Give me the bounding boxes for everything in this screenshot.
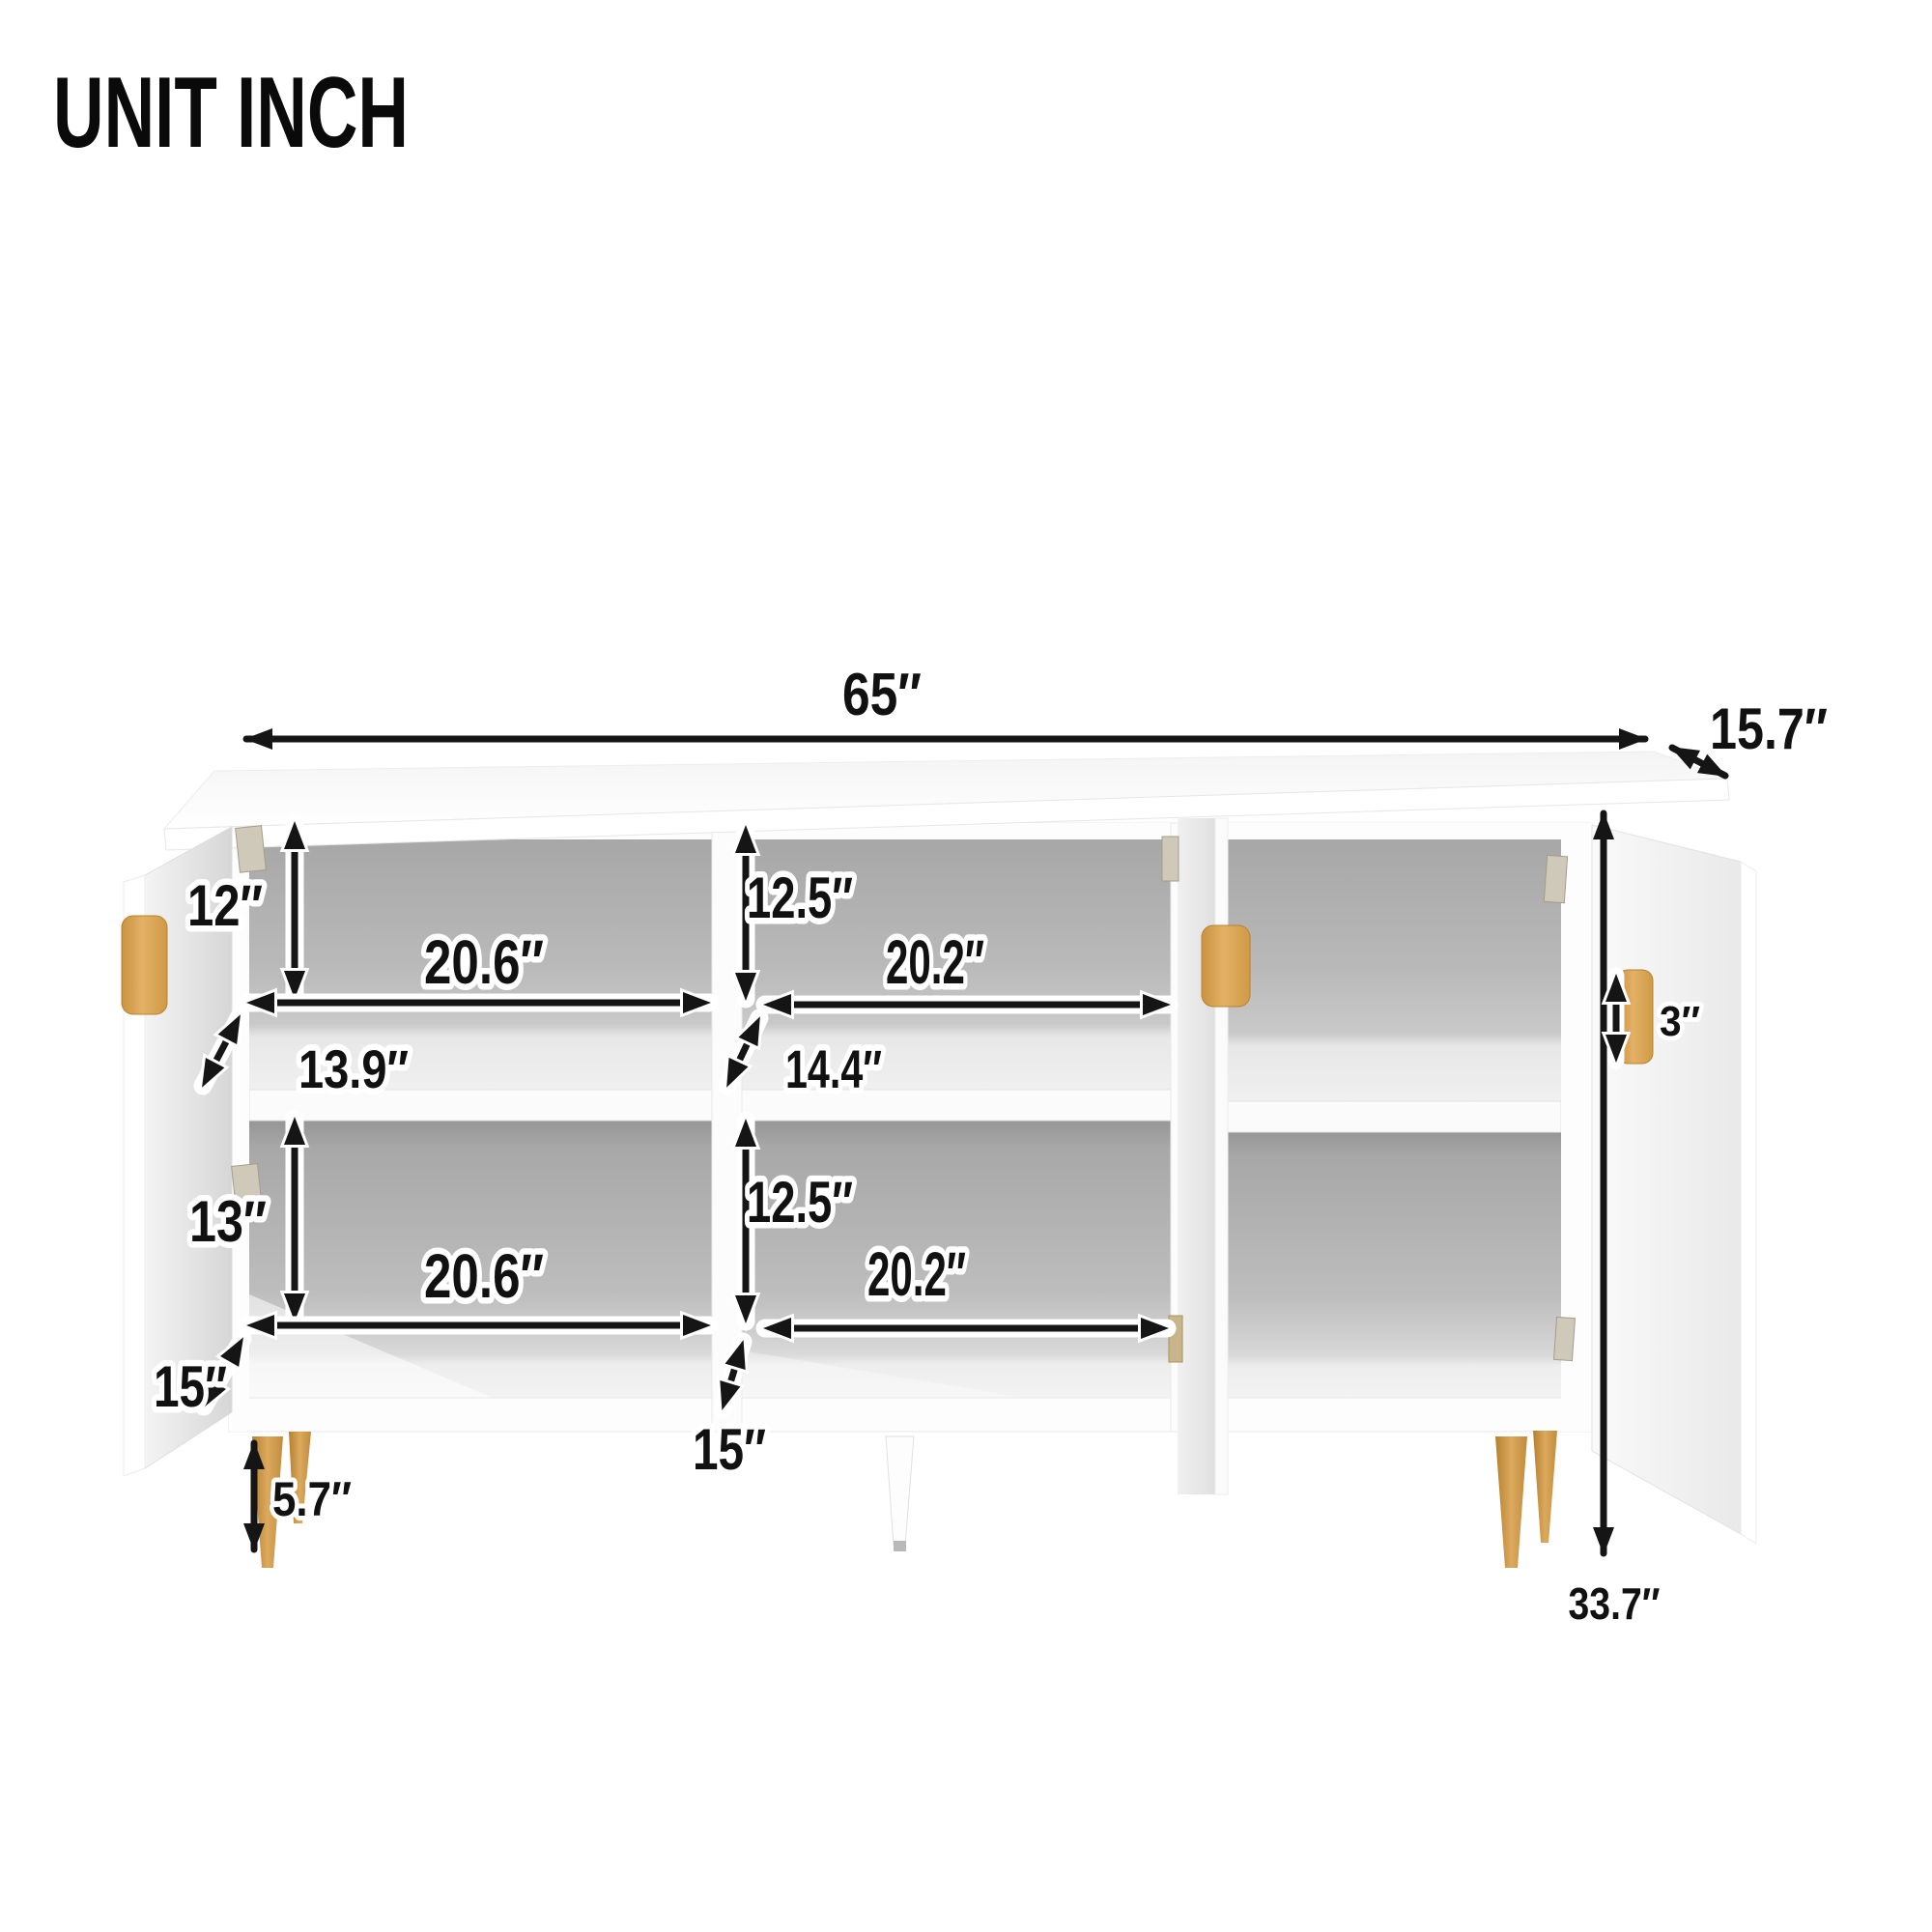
label-left-upper-width: 20.6″ [424,927,544,997]
hinge-left-top [236,826,267,873]
label-middle-upper-depth: 14.4″ [785,1038,882,1099]
cabinet-drawing [122,752,1756,1568]
compartment-right-upper [1203,838,1561,1101]
label-left-upper-height: 12″ [187,873,263,938]
label-middle-lower-depth: 15″ [693,1417,766,1482]
door-right-face [1592,825,1741,1534]
label-middle-lower-width: 20.2″ [867,1239,966,1309]
leg-right-front-gold [1495,1436,1527,1568]
shelf-right [1203,1101,1561,1132]
legs [252,1431,1557,1568]
door-middle-face [1178,818,1215,1494]
label-left-lower-width: 20.6″ [424,1241,544,1311]
label-left-lower-height: 13″ [189,1189,267,1254]
label-left-lower-depth: 15″ [154,1354,227,1419]
leg-right-back-gold [1533,1431,1557,1543]
label-overall-depth: 15.7″ [1710,696,1828,761]
handle-middle-gold [1202,925,1250,1007]
compartment-right-lower [1203,1132,1561,1398]
leg-center-foot [894,1541,906,1551]
label-leg-height: 5.7″ [272,1472,352,1526]
bottom-rail [229,1398,1592,1432]
diagram-canvas: UNIT INCH 65″ 15.7″ 33.7″ 5.7″ 3″ 12″ 20… [0,0,1932,1932]
dimension-diagram: UNIT INCH 65″ 15.7″ 33.7″ 5.7″ 3″ 12″ 20… [0,0,1932,1932]
door-middle-edge [1215,818,1228,1494]
hinge-middle-top [1162,837,1179,881]
label-middle-upper-width: 20.2″ [886,927,984,997]
label-middle-upper-height: 12.5″ [747,866,853,930]
label-handle-height: 3″ [1660,998,1700,1045]
hinge-right-top [1544,855,1567,902]
door-right-edge [1741,862,1756,1544]
leg-center-white [886,1436,914,1546]
label-left-upper-depth: 13.9″ [298,1038,409,1099]
hinge-right-bottom [1553,1317,1575,1360]
label-overall-height: 33.7″ [1569,1578,1661,1629]
label-middle-lower-height: 12.5″ [747,1170,853,1235]
handle-left-gold [122,916,167,1014]
page-title: UNIT INCH [53,57,409,169]
label-overall-width: 65″ [842,662,922,728]
